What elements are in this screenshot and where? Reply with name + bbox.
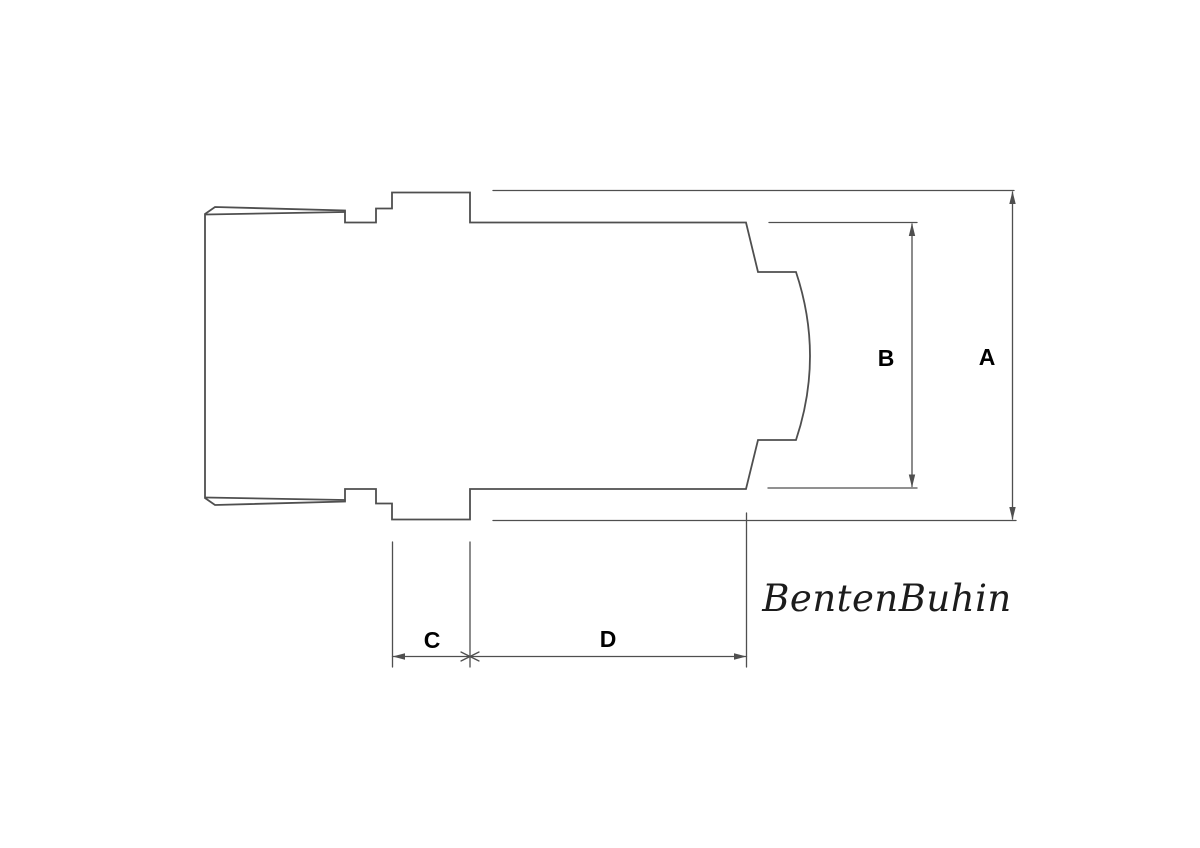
dim-label-c: C [424, 627, 441, 653]
dim-b-arrow-up [909, 223, 915, 236]
dim-label-b: B [878, 345, 895, 371]
dim-label-d: D [600, 626, 617, 652]
dim-b-arrow-down [909, 475, 915, 488]
part-outline [205, 193, 810, 520]
dim-d-arrow-right [734, 653, 747, 660]
brand-signature: BentenBuhin [761, 577, 1012, 620]
drawing-canvas: A B C D BentenBuhin [0, 0, 1200, 848]
dim-c-arrow-left [393, 653, 406, 660]
thread-taper-line-top [206, 212, 345, 215]
thread-taper-line-bottom [206, 498, 345, 501]
dim-a-arrow-down [1009, 507, 1015, 520]
dim-a-arrow-up [1009, 191, 1015, 204]
technical-drawing-svg: A B C D BentenBuhin [0, 0, 1200, 848]
dim-label-a: A [979, 344, 996, 370]
part-outline-group [205, 193, 810, 520]
